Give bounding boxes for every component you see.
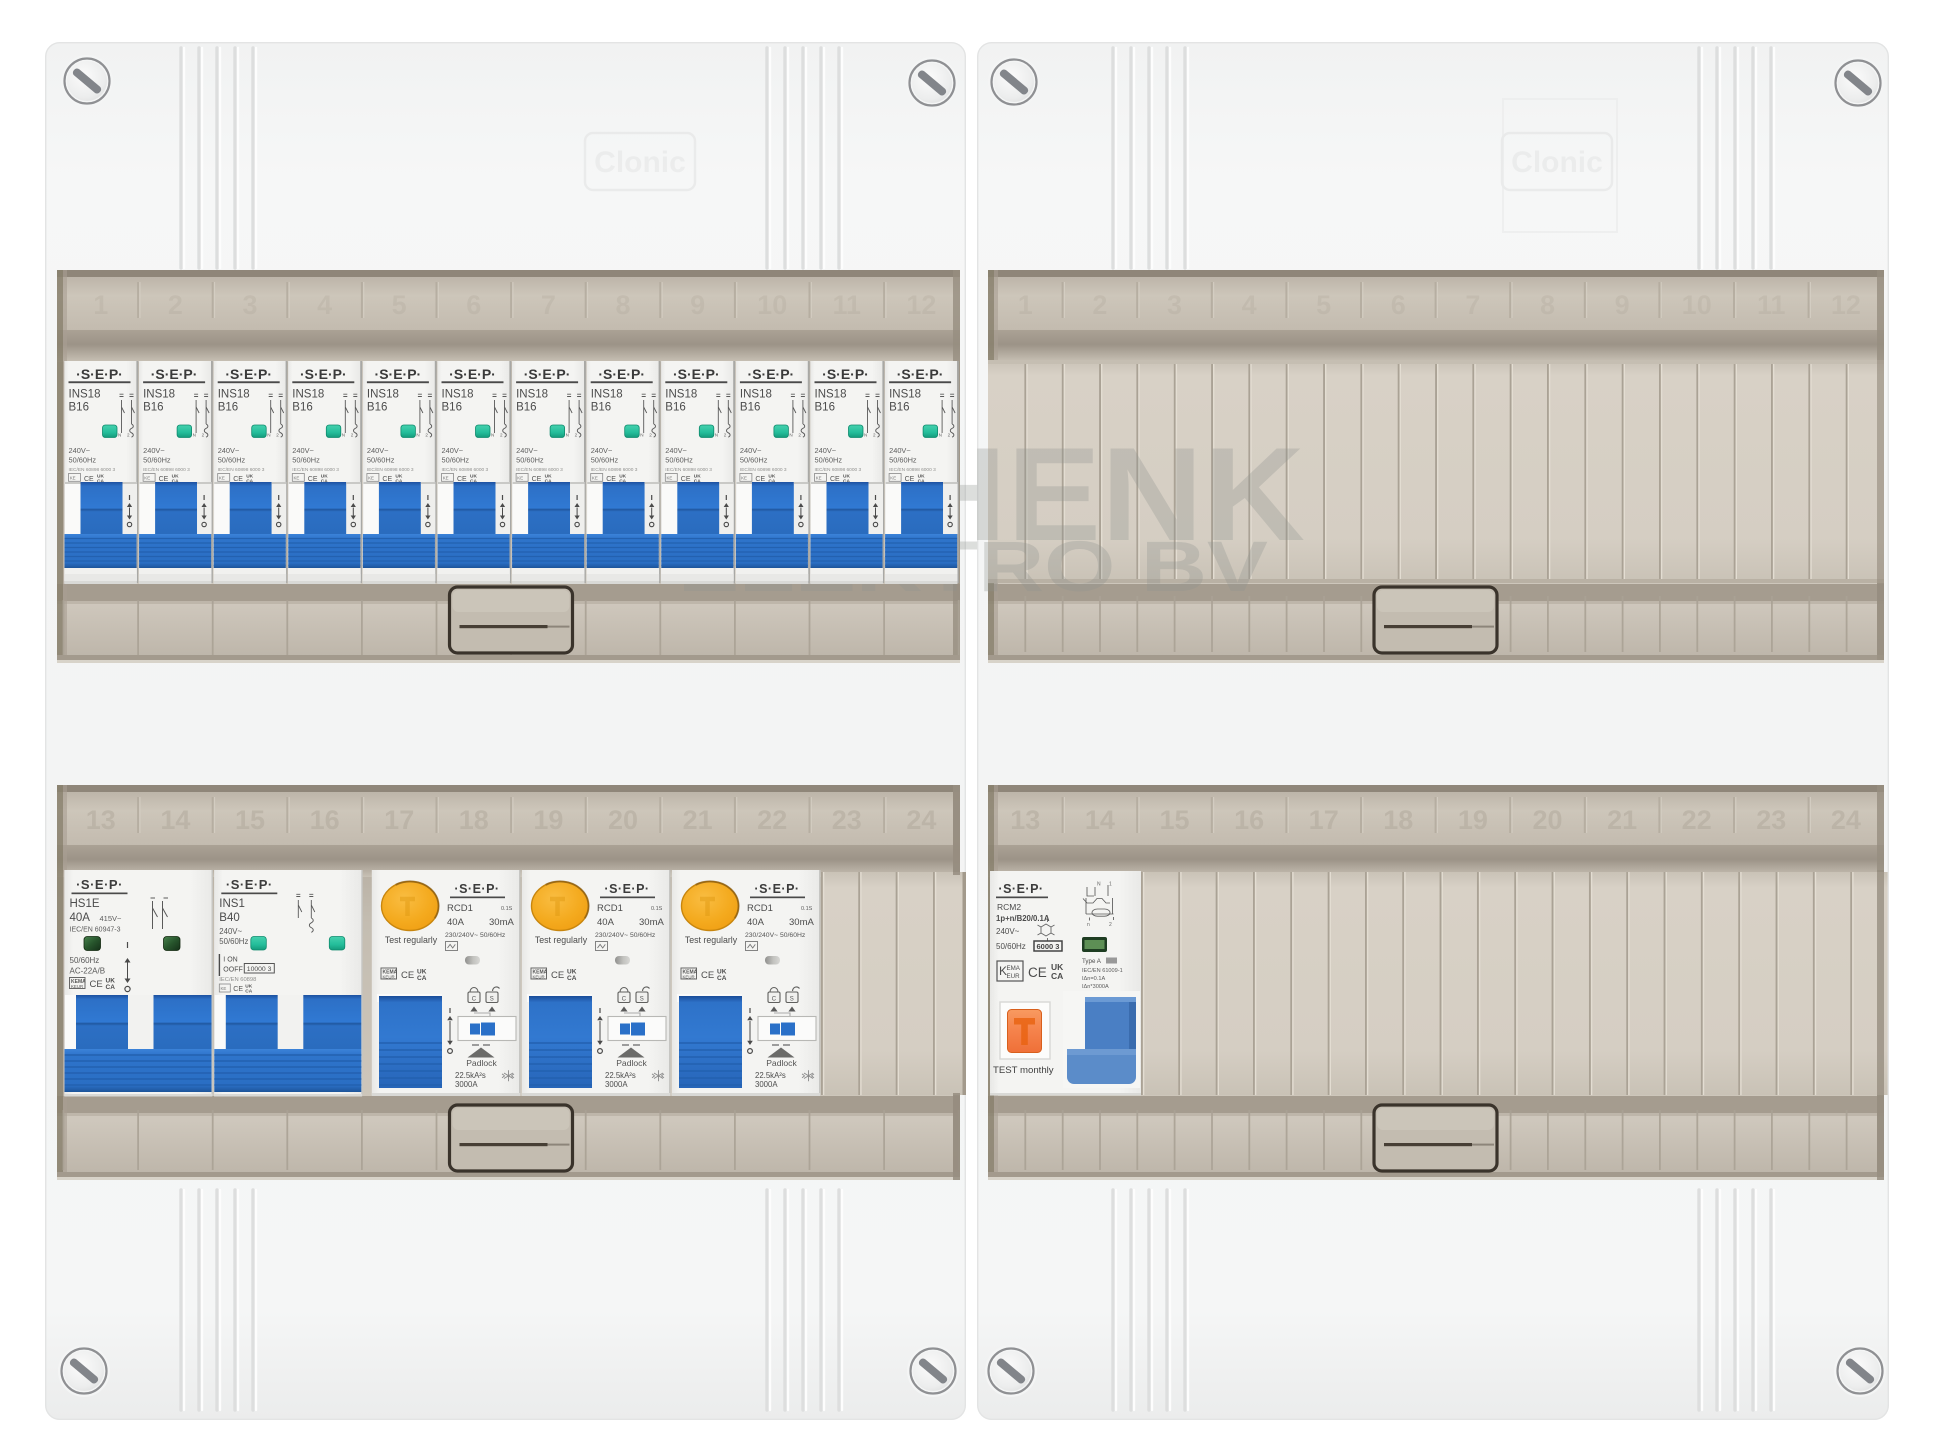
svg-text:AC-22A/B: AC-22A/B <box>70 967 106 976</box>
svg-text:3: 3 <box>242 290 257 320</box>
svg-text:11: 11 <box>1757 290 1786 320</box>
svg-text:IEC/EN 60947-3: IEC/EN 60947-3 <box>70 927 121 934</box>
svg-text:CA: CA <box>106 984 116 991</box>
svg-text:4: 4 <box>1242 290 1257 320</box>
svg-text:20: 20 <box>1532 805 1562 835</box>
svg-text:13: 13 <box>1010 805 1040 835</box>
svg-text:14: 14 <box>160 805 190 835</box>
svg-text:2: 2 <box>1109 922 1112 928</box>
svg-text:n: n <box>1087 922 1090 928</box>
svg-text:1p+n/B20/0.1A: 1p+n/B20/0.1A <box>996 914 1050 923</box>
svg-text:CE: CE <box>233 986 243 993</box>
svg-text:23: 23 <box>1756 805 1786 835</box>
svg-text:22: 22 <box>1682 805 1712 835</box>
svg-text:8: 8 <box>1540 290 1555 320</box>
svg-text:8: 8 <box>615 290 630 320</box>
svg-text:EUR: EUR <box>1007 973 1021 980</box>
svg-text:IΔn=0.1A: IΔn=0.1A <box>1082 976 1105 982</box>
svg-text:CE: CE <box>1028 965 1047 980</box>
svg-text:24: 24 <box>906 805 936 835</box>
svg-text:RCM2: RCM2 <box>997 902 1021 912</box>
svg-text:15: 15 <box>235 805 265 835</box>
svg-text:9: 9 <box>690 290 705 320</box>
svg-text:23: 23 <box>832 805 862 835</box>
svg-text:16: 16 <box>1234 805 1264 835</box>
svg-text:9: 9 <box>1615 290 1630 320</box>
svg-text:·S·E·P·: ·S·E·P· <box>76 877 123 892</box>
svg-text:10: 10 <box>1682 290 1712 320</box>
svg-text:13: 13 <box>86 805 116 835</box>
svg-text:TEST monthly: TEST monthly <box>993 1065 1054 1076</box>
svg-text:HS1E: HS1E <box>70 898 100 910</box>
svg-text:5: 5 <box>392 290 407 320</box>
svg-text:IEC/EN 61009-1: IEC/EN 61009-1 <box>1082 968 1123 974</box>
svg-text:I ON: I ON <box>223 957 237 964</box>
svg-text:1: 1 <box>1018 290 1033 320</box>
svg-text:21: 21 <box>683 805 713 835</box>
svg-text:·S·E·P·: ·S·E·P· <box>226 877 273 892</box>
svg-text:Clonic: Clonic <box>1511 146 1603 179</box>
svg-text:1: 1 <box>93 290 108 320</box>
svg-text:IΔn*3000A: IΔn*3000A <box>1082 984 1109 990</box>
svg-text:2: 2 <box>1092 290 1107 320</box>
svg-text:20: 20 <box>608 805 638 835</box>
svg-text:IEC/EN 60898: IEC/EN 60898 <box>219 977 256 983</box>
svg-text:10000 3: 10000 3 <box>247 966 272 973</box>
svg-text:415V~: 415V~ <box>100 914 123 923</box>
svg-text:15: 15 <box>1159 805 1189 835</box>
svg-text:INS1: INS1 <box>219 898 245 910</box>
svg-text:18: 18 <box>459 805 489 835</box>
svg-text:4: 4 <box>317 290 332 320</box>
svg-text:21: 21 <box>1607 805 1637 835</box>
svg-text:50/60Hz: 50/60Hz <box>219 937 248 946</box>
svg-text:240V~: 240V~ <box>996 927 1020 936</box>
svg-text:6: 6 <box>1391 290 1406 320</box>
svg-text:17: 17 <box>384 805 414 835</box>
svg-text:Type A: Type A <box>1082 958 1102 965</box>
svg-text:1: 1 <box>1109 882 1112 888</box>
svg-text:12: 12 <box>1831 290 1861 320</box>
svg-text:B40: B40 <box>219 912 239 924</box>
svg-text:16: 16 <box>310 805 340 835</box>
svg-text:17: 17 <box>1309 805 1339 835</box>
svg-text:22: 22 <box>757 805 787 835</box>
svg-text:40A: 40A <box>70 912 91 924</box>
svg-text:19: 19 <box>533 805 563 835</box>
svg-text:7: 7 <box>541 290 556 320</box>
svg-text:Clonic: Clonic <box>594 146 686 179</box>
svg-text:·S·E·P·: ·S·E·P· <box>998 882 1043 896</box>
svg-text:12: 12 <box>906 290 936 320</box>
svg-text:10: 10 <box>757 290 787 320</box>
svg-text:7: 7 <box>1465 290 1480 320</box>
svg-text:2: 2 <box>168 290 183 320</box>
svg-text:11: 11 <box>833 290 862 320</box>
svg-text:6000 3: 6000 3 <box>1037 942 1060 951</box>
svg-text:KEUR: KEUR <box>71 984 83 989</box>
svg-text:19: 19 <box>1458 805 1488 835</box>
svg-text:18: 18 <box>1383 805 1413 835</box>
svg-text:CA: CA <box>245 989 252 995</box>
svg-text:24: 24 <box>1831 805 1861 835</box>
svg-text:50/60Hz: 50/60Hz <box>70 956 100 965</box>
svg-text:14: 14 <box>1085 805 1115 835</box>
svg-text:KE: KE <box>221 986 227 991</box>
svg-text:6: 6 <box>466 290 481 320</box>
svg-text:EMA: EMA <box>1007 965 1021 972</box>
svg-text:OOFF: OOFF <box>223 967 242 974</box>
svg-text:CE: CE <box>90 979 103 990</box>
svg-text:50/60Hz: 50/60Hz <box>996 942 1026 951</box>
svg-text:N: N <box>1097 882 1101 888</box>
svg-text:5: 5 <box>1316 290 1331 320</box>
svg-text:3: 3 <box>1167 290 1182 320</box>
svg-text:CA: CA <box>1051 971 1063 981</box>
svg-text:240V~: 240V~ <box>219 927 242 936</box>
